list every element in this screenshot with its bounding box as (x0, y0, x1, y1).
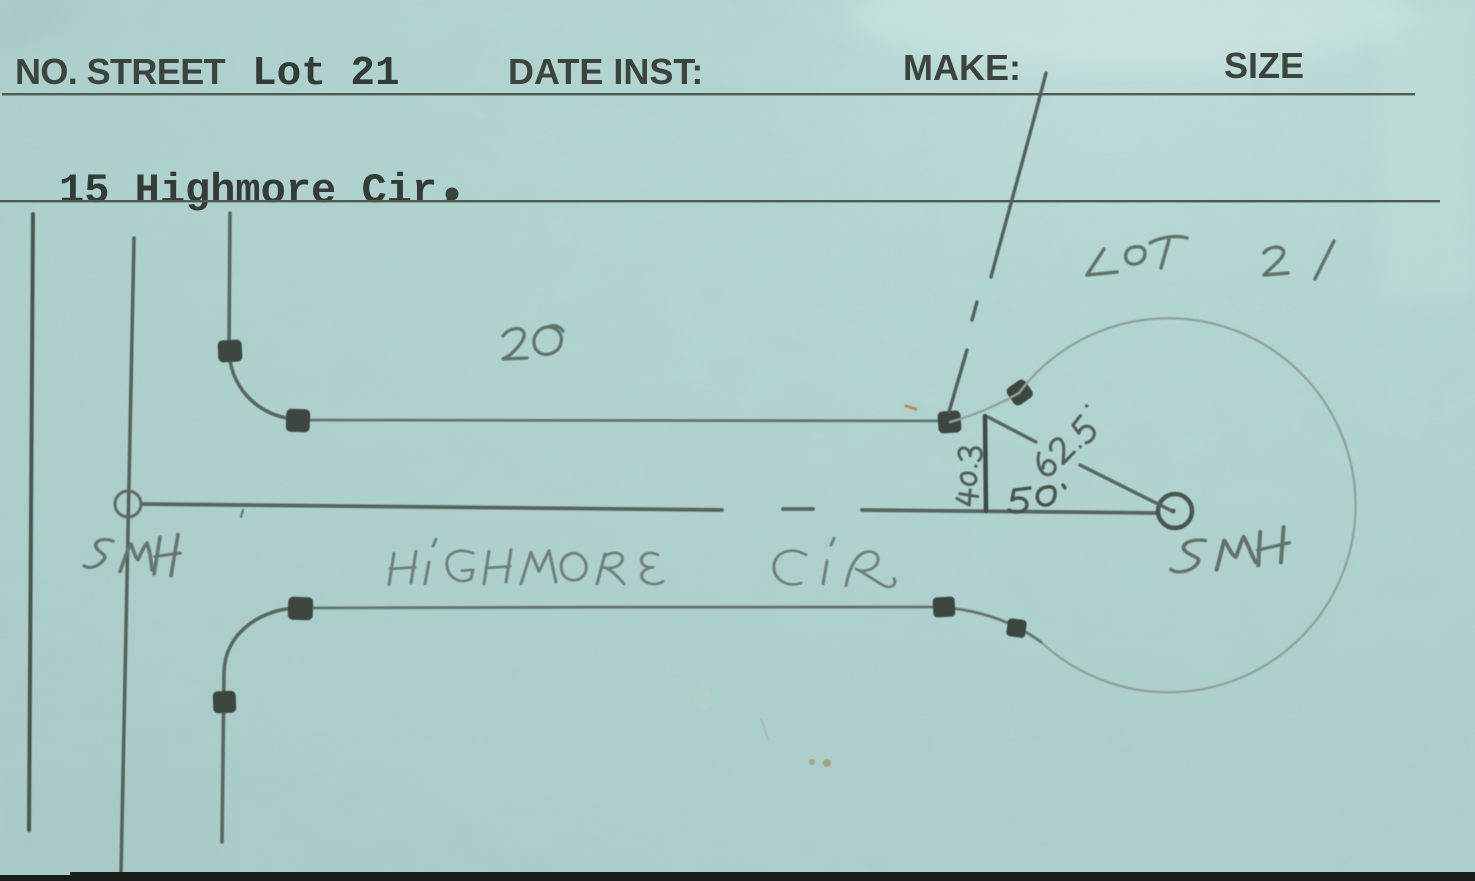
svg-text:SIZE: SIZE (1224, 45, 1304, 86)
svg-text:NO. STREET: NO. STREET (15, 51, 226, 92)
svg-text:DATE INST:: DATE INST: (508, 51, 703, 92)
svg-text:MAKE:: MAKE: (903, 47, 1021, 88)
svg-text:15 Highmore Cir.: 15 Highmore Cir. (59, 167, 462, 215)
svg-text:Lot 21: Lot 21 (252, 51, 400, 97)
